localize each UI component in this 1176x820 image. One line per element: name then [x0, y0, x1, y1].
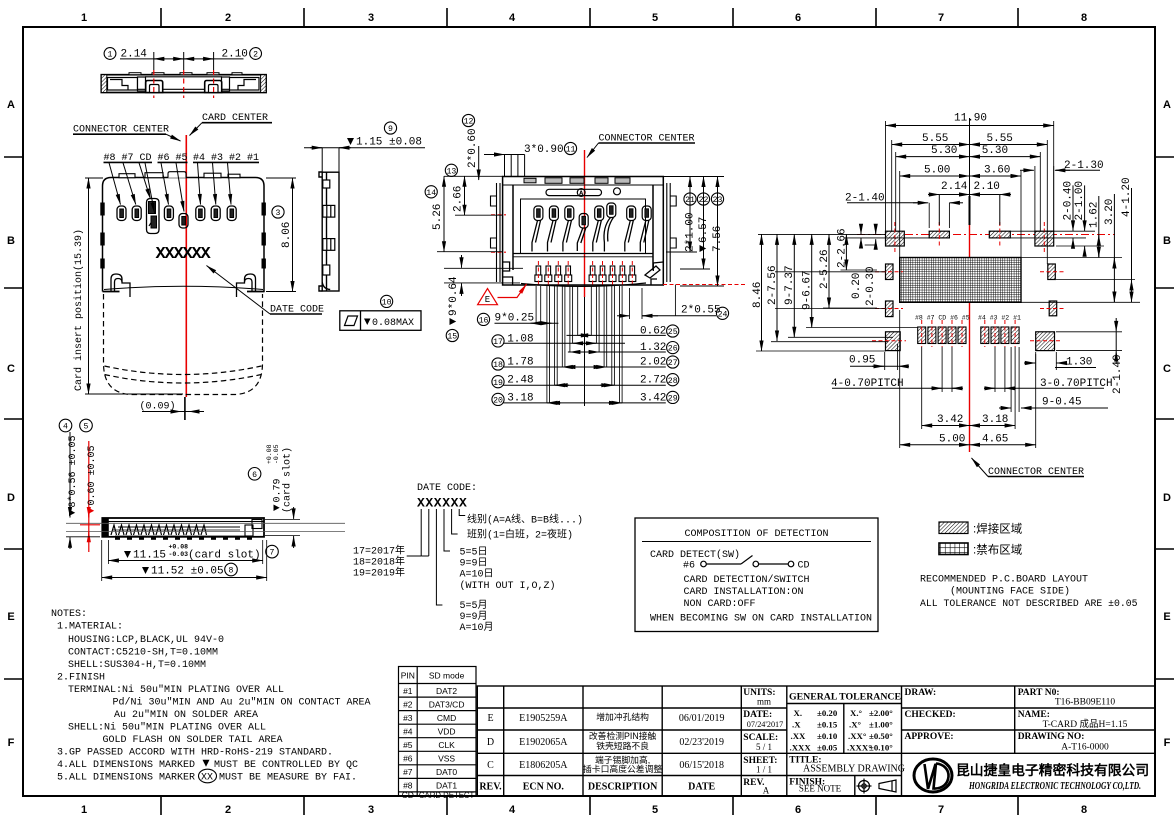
- svg-text:A-T16-0000: A-T16-0000: [1061, 743, 1109, 753]
- svg-text:2.FINISH: 2.FINISH: [57, 672, 105, 683]
- svg-text:-0.05: -0.05: [273, 444, 280, 464]
- svg-text:11.90: 11.90: [954, 113, 987, 125]
- svg-text:17=2017年: 17=2017年: [353, 544, 405, 558]
- svg-text:1: 1: [81, 804, 87, 816]
- svg-text:TERMINAL:Ni 50u"MIN PLATING OV: TERMINAL:Ni 50u"MIN PLATING OVER ALL: [68, 684, 284, 696]
- svg-text:DAT0: DAT0: [436, 767, 457, 777]
- svg-text:9-6.67: 9-6.67: [802, 270, 814, 310]
- svg-text:4.ALL DIMENSIONS MARKED: 4.ALL DIMENSIONS MARKED: [57, 760, 195, 771]
- svg-text:1.62: 1.62: [1088, 202, 1100, 228]
- svg-text:4: 4: [509, 12, 516, 24]
- svg-text:.X°: .X°: [849, 720, 862, 730]
- svg-text:26: 26: [668, 345, 678, 354]
- svg-text:RECOMMENDED P.C.BOARD LAYOUT: RECOMMENDED P.C.BOARD LAYOUT: [920, 575, 1088, 586]
- svg-text:A=10日: A=10日: [460, 569, 494, 581]
- svg-text:XXXXXX: XXXXXX: [155, 245, 211, 264]
- svg-text:SHELL:Ni 50u"MIN PLATING OVER: SHELL:Ni 50u"MIN PLATING OVER ALL: [68, 721, 266, 733]
- svg-text:0.95: 0.95: [849, 355, 875, 367]
- svg-text:CONTACT:C5210-SH,T=0.10MM: CONTACT:C5210-SH,T=0.10MM: [68, 647, 218, 658]
- svg-text:7: 7: [938, 12, 944, 24]
- svg-text:插卡口高度公差调整: 插卡口高度公差调整: [583, 763, 662, 774]
- svg-text:2.14: 2.14: [121, 49, 148, 61]
- svg-text:2-1.00: 2-1.00: [1074, 181, 1086, 221]
- svg-text:REV.: REV.: [479, 782, 502, 793]
- svg-text:E1806205A: E1806205A: [519, 760, 568, 771]
- svg-text:#8: #8: [403, 781, 413, 791]
- svg-text:DAT2: DAT2: [436, 686, 457, 696]
- svg-text:28: 28: [668, 377, 678, 386]
- svg-text:E1902065A: E1902065A: [519, 737, 568, 748]
- svg-text:#1: #1: [403, 686, 413, 696]
- svg-text:9=9日: 9=9日: [460, 558, 488, 570]
- svg-text:GENERAL TOLERANCE: GENERAL TOLERANCE: [789, 692, 902, 703]
- svg-text:19: 19: [493, 379, 503, 388]
- svg-text:DATE:: DATE:: [743, 710, 772, 720]
- svg-text:.XXX: .XXX: [790, 743, 812, 753]
- svg-text:29: 29: [668, 395, 678, 404]
- svg-text:(WITH OUT I,O,Z): (WITH OUT I,O,Z): [460, 580, 556, 592]
- svg-text:02/23'2019: 02/23'2019: [679, 737, 724, 748]
- svg-text:2.10: 2.10: [974, 181, 1000, 193]
- svg-text:1.30: 1.30: [1066, 357, 1092, 369]
- svg-text:12: 12: [464, 118, 474, 127]
- svg-text:9=9月: 9=9月: [460, 610, 488, 623]
- svg-text:8: 8: [1081, 804, 1087, 816]
- svg-text:1: 1: [81, 12, 87, 24]
- svg-text:1.15 ±0.08: 1.15 ±0.08: [356, 137, 422, 149]
- svg-text:(card slot): (card slot): [282, 447, 294, 513]
- svg-text:5: 5: [652, 12, 658, 24]
- svg-text:C: C: [487, 760, 494, 771]
- svg-text:Au 2u"MIN ON SOLDER AREA: Au 2u"MIN ON SOLDER AREA: [114, 709, 258, 721]
- svg-text:3: 3: [368, 12, 374, 24]
- svg-text:3.20: 3.20: [1104, 199, 1116, 225]
- svg-text:#6: #6: [403, 754, 413, 764]
- svg-text:20: 20: [493, 397, 503, 406]
- svg-text:A: A: [7, 99, 15, 111]
- svg-text:0.08MAX: 0.08MAX: [372, 318, 414, 329]
- svg-text:7: 7: [938, 804, 944, 816]
- svg-text:C: C: [1163, 363, 1171, 375]
- svg-text:3: 3: [368, 804, 374, 816]
- svg-text:DAT3/CD: DAT3/CD: [429, 700, 465, 710]
- svg-text:MUST BE CONTROLLED BY QC: MUST BE CONTROLLED BY QC: [214, 760, 358, 771]
- svg-text:9-0.45: 9-0.45: [1042, 397, 1082, 409]
- svg-text:5: 5: [84, 423, 89, 432]
- svg-text:DATE: DATE: [688, 782, 715, 793]
- svg-text:2*0.60: 2*0.60: [467, 128, 479, 168]
- svg-text:X.°: X.°: [850, 708, 863, 718]
- svg-text:CARD DETECT(SW): CARD DETECT(SW): [650, 549, 740, 561]
- svg-text:昆山捷皇电子精密科技有限公司: 昆山捷皇电子精密科技有限公司: [956, 762, 1149, 778]
- svg-text:.XX°: .XX°: [848, 731, 867, 741]
- svg-text:PIN: PIN: [401, 671, 415, 681]
- svg-text:#2: #2: [403, 700, 413, 710]
- svg-text:(MOUNTING FACE SIDE): (MOUNTING FACE SIDE): [950, 586, 1070, 598]
- svg-text:DATE CODE:: DATE CODE:: [417, 483, 477, 494]
- svg-text:24: 24: [718, 310, 728, 319]
- svg-text:5.00: 5.00: [939, 434, 965, 446]
- svg-text:.XX: .XX: [791, 731, 807, 741]
- svg-text:E: E: [487, 713, 493, 724]
- svg-text:CD: CD: [402, 790, 414, 800]
- svg-text:2.66: 2.66: [453, 186, 465, 212]
- svg-text:班别(1=白班，2=夜班): 班别(1=白班，2=夜班): [467, 528, 573, 542]
- svg-text:17: 17: [493, 338, 503, 347]
- svg-text:E1905259A: E1905259A: [519, 713, 568, 724]
- svg-text:8: 8: [1081, 12, 1087, 24]
- svg-text:E: E: [7, 611, 14, 623]
- svg-text:0.60 ±0.05: 0.60 ±0.05: [87, 445, 98, 505]
- svg-text:8*0.56 ±0.05: 8*0.56 ±0.05: [67, 435, 79, 507]
- svg-text:3.60: 3.60: [984, 164, 1010, 176]
- svg-text:14: 14: [426, 189, 436, 198]
- svg-text:DESCRIPTION: DESCRIPTION: [588, 782, 658, 793]
- svg-text:9: 9: [388, 125, 393, 134]
- svg-text:19=2019年: 19=2019年: [353, 566, 405, 580]
- svg-text:-0.03: -0.03: [169, 551, 189, 558]
- svg-text:SD mode: SD mode: [429, 671, 465, 681]
- svg-text:E: E: [1163, 611, 1170, 623]
- svg-text:NAME:: NAME:: [1018, 710, 1050, 720]
- svg-text:F: F: [8, 737, 15, 749]
- svg-text:B: B: [1163, 235, 1171, 247]
- svg-text:线别(A=A线、B=B线...): 线别(A=A线、B=B线...): [467, 513, 583, 527]
- svg-text:XXXXXX: XXXXXX: [417, 496, 467, 511]
- svg-text:D: D: [7, 492, 15, 504]
- svg-text:ALL TOLERANCE NOT DESCRIBED AR: ALL TOLERANCE NOT DESCRIBED ARE ±0.05: [920, 598, 1138, 609]
- svg-text:.X: .X: [792, 720, 801, 730]
- svg-text:CD: CD: [798, 561, 810, 572]
- svg-text:1 / 1: 1 / 1: [756, 765, 772, 775]
- svg-text:6: 6: [795, 804, 801, 816]
- svg-text:±1.00°: ±1.00°: [869, 720, 893, 730]
- svg-text:铁壳短路不良: 铁壳短路不良: [596, 740, 649, 751]
- svg-text:F: F: [1164, 737, 1171, 749]
- svg-text:±0.10°: ±0.10°: [869, 743, 893, 753]
- svg-text:5 / 1: 5 / 1: [756, 742, 772, 752]
- svg-text:增加冲孔结构: 增加冲孔结构: [596, 711, 649, 722]
- svg-text:9*0.64: 9*0.64: [448, 276, 460, 316]
- svg-text:18=2018年: 18=2018年: [353, 555, 405, 569]
- svg-text:4: 4: [509, 804, 516, 816]
- svg-text:#7: #7: [403, 767, 413, 777]
- svg-text:+0.08: +0.08: [169, 544, 189, 551]
- svg-text:5.55: 5.55: [987, 133, 1013, 145]
- svg-text:B: B: [7, 235, 15, 247]
- svg-text:2-2.66: 2-2.66: [836, 228, 848, 268]
- svg-text:REV.: REV.: [743, 778, 764, 788]
- svg-text:0.20: 0.20: [851, 273, 863, 299]
- svg-text:CMD: CMD: [437, 713, 456, 723]
- svg-text:VSS: VSS: [438, 754, 455, 764]
- svg-text:A=10月: A=10月: [460, 621, 494, 634]
- svg-text:(0.09): (0.09): [140, 401, 176, 413]
- svg-text:±0.15: ±0.15: [817, 720, 838, 730]
- svg-text:5.26: 5.26: [432, 204, 444, 230]
- svg-text:6: 6: [252, 471, 257, 480]
- svg-text:X.: X.: [794, 708, 803, 718]
- svg-text:D: D: [487, 737, 494, 748]
- svg-text:5=5月: 5=5月: [460, 599, 488, 612]
- svg-text:ECN NO.: ECN NO.: [523, 782, 565, 793]
- svg-text:2-5.26: 2-5.26: [819, 249, 831, 289]
- svg-text:CHECKED:: CHECKED:: [905, 710, 956, 720]
- svg-text:2.14: 2.14: [941, 181, 968, 193]
- svg-text:13: 13: [446, 167, 456, 176]
- svg-text:8.46: 8.46: [752, 282, 764, 308]
- svg-text:27: 27: [668, 359, 678, 368]
- svg-text:07/24'2017: 07/24'2017: [747, 720, 784, 729]
- svg-text:2-0.40: 2-0.40: [1062, 181, 1074, 221]
- svg-text:5: 5: [652, 804, 658, 816]
- svg-text:DRAW:: DRAW:: [905, 688, 937, 698]
- svg-text:DRAWING NO:: DRAWING NO:: [1018, 732, 1085, 742]
- svg-text:CARD DETECT: CARD DETECT: [419, 791, 475, 800]
- svg-text:T-CARD 成品H=1.15: T-CARD 成品H=1.15: [1043, 718, 1128, 730]
- svg-text:E: E: [485, 295, 490, 305]
- svg-text:11.15: 11.15: [133, 550, 166, 562]
- svg-text::禁布区域: :禁布区域: [973, 544, 1023, 557]
- svg-text:SHELL:SUS304-H,T=0.10MM: SHELL:SUS304-H,T=0.10MM: [68, 660, 206, 671]
- svg-text:NOTES:: NOTES:: [51, 609, 87, 620]
- svg-text:改善检测PIN接触: 改善检测PIN接触: [589, 730, 657, 741]
- svg-text:GOLD FLASH ON SOLDER TAIL AREA: GOLD FLASH ON SOLDER TAIL AREA: [103, 735, 283, 746]
- svg-text:3.GP PASSED ACCORD WITH HRD-Ro: 3.GP PASSED ACCORD WITH HRD-RoHS-219 STA…: [57, 747, 333, 758]
- svg-text:Pd/Ni 30u"MIN AND Au 2u"MIN ON: Pd/Ni 30u"MIN AND Au 2u"MIN ON CONTACT A…: [113, 696, 371, 708]
- svg-text:2*0.55: 2*0.55: [681, 305, 721, 317]
- svg-text:1.MATERIAL:: 1.MATERIAL:: [57, 622, 123, 633]
- svg-text:7: 7: [270, 549, 275, 558]
- svg-text:5.30: 5.30: [931, 145, 957, 157]
- svg-text:+0.08: +0.08: [266, 444, 273, 464]
- svg-text:A: A: [763, 786, 770, 796]
- svg-text:11.52 ±0.05: 11.52 ±0.05: [151, 566, 224, 578]
- svg-text:5.ALL DIMENSIONS MARKER XX MUS: 5.ALL DIMENSIONS MARKER XX MUST BE MEASU…: [57, 772, 357, 783]
- svg-text:18: 18: [493, 361, 503, 370]
- svg-text:APPROVE:: APPROVE:: [905, 732, 954, 742]
- svg-text:A: A: [1163, 99, 1171, 111]
- svg-text:06/15'2018: 06/15'2018: [679, 760, 724, 771]
- svg-text:8.06: 8.06: [281, 222, 293, 248]
- svg-text:9-7.37: 9-7.37: [784, 265, 796, 305]
- svg-text:3: 3: [276, 209, 281, 218]
- svg-text:15: 15: [447, 333, 457, 342]
- svg-text:5.55: 5.55: [922, 133, 948, 145]
- svg-text:HONGRIDA ELECTRONIC TECHNOLOGY: HONGRIDA ELECTRONIC TECHNOLOGY CO,LTD.: [968, 781, 1141, 792]
- svg-text:5.30: 5.30: [982, 145, 1008, 157]
- svg-text:PART N0:: PART N0:: [1018, 688, 1060, 698]
- svg-text:8: 8: [229, 567, 234, 576]
- svg-text:±0.05: ±0.05: [817, 743, 838, 753]
- svg-text:D: D: [1163, 492, 1171, 504]
- svg-text:06/01/2019: 06/01/2019: [679, 713, 725, 724]
- svg-text:(card slot): (card slot): [188, 550, 261, 562]
- svg-text:2-0.30: 2-0.30: [865, 266, 877, 306]
- svg-text:#6: #6: [683, 561, 695, 572]
- svg-text:4.65: 4.65: [982, 434, 1008, 446]
- svg-text:#3: #3: [403, 713, 413, 723]
- svg-text:10: 10: [382, 299, 392, 308]
- svg-text:Card insert position(15.39): Card insert position(15.39): [73, 229, 85, 391]
- svg-text:3.42: 3.42: [937, 414, 963, 426]
- svg-text:ASSEMBLY DRAWING: ASSEMBLY DRAWING: [803, 764, 905, 775]
- svg-text:±0.20: ±0.20: [817, 708, 838, 718]
- svg-text:25: 25: [668, 328, 678, 337]
- svg-text:3.18: 3.18: [982, 414, 1008, 426]
- svg-text:2.10: 2.10: [222, 49, 248, 61]
- svg-text:DAT1: DAT1: [436, 781, 457, 791]
- svg-text:5.00: 5.00: [924, 164, 950, 176]
- svg-text:COMPOSITION OF DETECTION: COMPOSITION OF DETECTION: [684, 529, 828, 540]
- svg-text:CARD DETECTION/SWITCH: CARD DETECTION/SWITCH: [684, 574, 810, 586]
- svg-text:11: 11: [566, 146, 576, 155]
- svg-text::焊接区域: :焊接区域: [973, 522, 1023, 536]
- svg-text:C: C: [7, 363, 15, 375]
- svg-text:WHEN BECOMING SW ON CARD INSTA: WHEN BECOMING SW ON CARD INSTALLATION: [650, 614, 872, 625]
- svg-text:T16-BB09E110: T16-BB09E110: [1055, 698, 1116, 708]
- svg-text:VDD: VDD: [438, 727, 456, 737]
- svg-text:2: 2: [253, 51, 258, 60]
- svg-text:6: 6: [795, 12, 801, 24]
- svg-text:2: 2: [225, 804, 231, 816]
- svg-text:3*0.90: 3*0.90: [524, 144, 564, 156]
- svg-text:±0.10: ±0.10: [817, 731, 838, 741]
- svg-text:±2.00°: ±2.00°: [869, 708, 893, 718]
- svg-text:16: 16: [479, 317, 489, 326]
- svg-text:1: 1: [108, 51, 113, 60]
- svg-text:mm: mm: [757, 697, 771, 707]
- svg-text:HOUSING:LCP,BLACK,UL 94V-0: HOUSING:LCP,BLACK,UL 94V-0: [68, 635, 224, 646]
- svg-text:2-1.40: 2-1.40: [1112, 354, 1124, 394]
- svg-text:5=5日: 5=5日: [460, 547, 488, 559]
- svg-text:2-7.56: 2-7.56: [767, 265, 779, 305]
- svg-text:SEE NOTE: SEE NOTE: [799, 784, 842, 794]
- svg-text:NON CARD:OFF: NON CARD:OFF: [684, 599, 756, 610]
- svg-text:#5: #5: [403, 740, 413, 750]
- svg-text:4: 4: [63, 423, 68, 432]
- svg-text:CLK: CLK: [438, 740, 455, 750]
- svg-text:CARD INSTALLATION:ON: CARD INSTALLATION:ON: [684, 587, 804, 598]
- svg-text:#4: #4: [403, 727, 413, 737]
- svg-text:±0.50°: ±0.50°: [869, 731, 893, 741]
- svg-text:4-1.20: 4-1.20: [1121, 177, 1133, 217]
- svg-text:2: 2: [225, 12, 231, 24]
